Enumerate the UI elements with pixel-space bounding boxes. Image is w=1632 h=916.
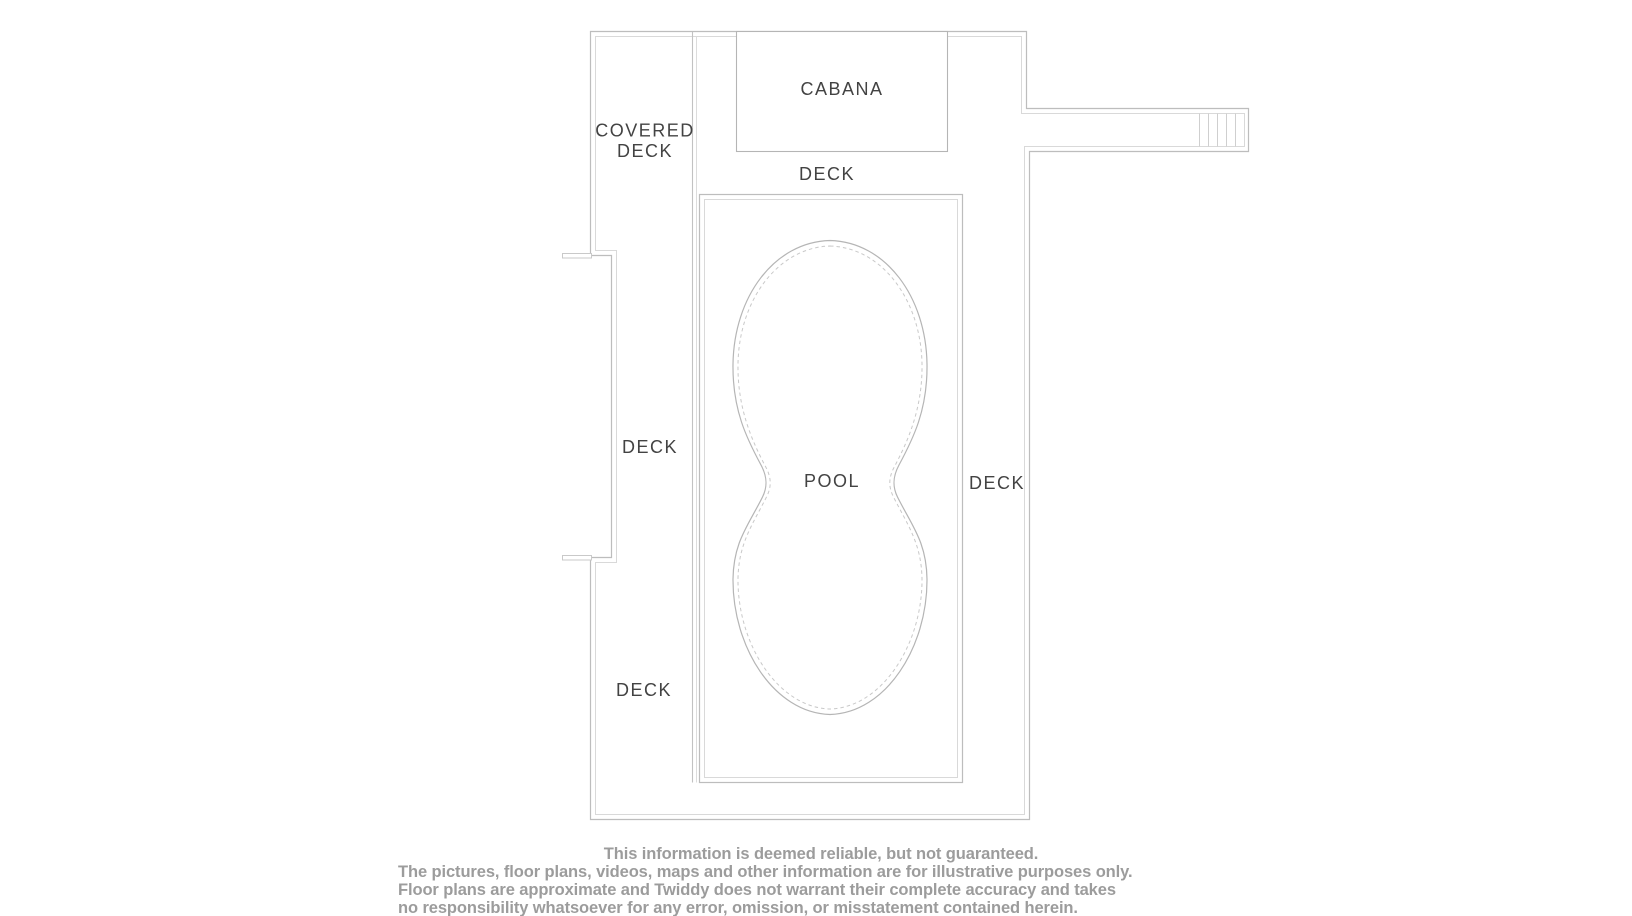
wall-cap-bottom: [563, 556, 592, 561]
label-cabana: CABANA: [800, 79, 883, 99]
disclaimer-line-3: Floor plans are approximate and Twiddy d…: [398, 881, 1244, 899]
disclaimer: This information is deemed reliable, but…: [398, 845, 1244, 916]
disclaimer-line-1: This information is deemed reliable, but…: [398, 845, 1244, 863]
room-labels: COVERED DECK CABANA DECK DECK DECK DECK …: [595, 79, 1025, 700]
wall-cap-top: [563, 254, 592, 259]
label-deck-left-bottom: DECK: [616, 680, 672, 700]
label-pool: POOL: [804, 471, 860, 491]
label-covered-deck-line2: DECK: [617, 141, 673, 161]
floor-plan-page: COVERED DECK CABANA DECK DECK DECK DECK …: [0, 0, 1632, 916]
stairs: [1200, 114, 1236, 147]
floor-plan-drawing: COVERED DECK CABANA DECK DECK DECK DECK …: [0, 0, 1632, 916]
disclaimer-line-2: The pictures, floor plans, videos, maps …: [398, 863, 1244, 881]
label-deck-left-middle: DECK: [622, 437, 678, 457]
label-deck-right: DECK: [969, 473, 1025, 493]
disclaimer-line-4: no responsibility whatsoever for any err…: [398, 899, 1244, 916]
label-deck-top: DECK: [799, 164, 855, 184]
label-covered-deck-line1: COVERED: [595, 121, 695, 141]
